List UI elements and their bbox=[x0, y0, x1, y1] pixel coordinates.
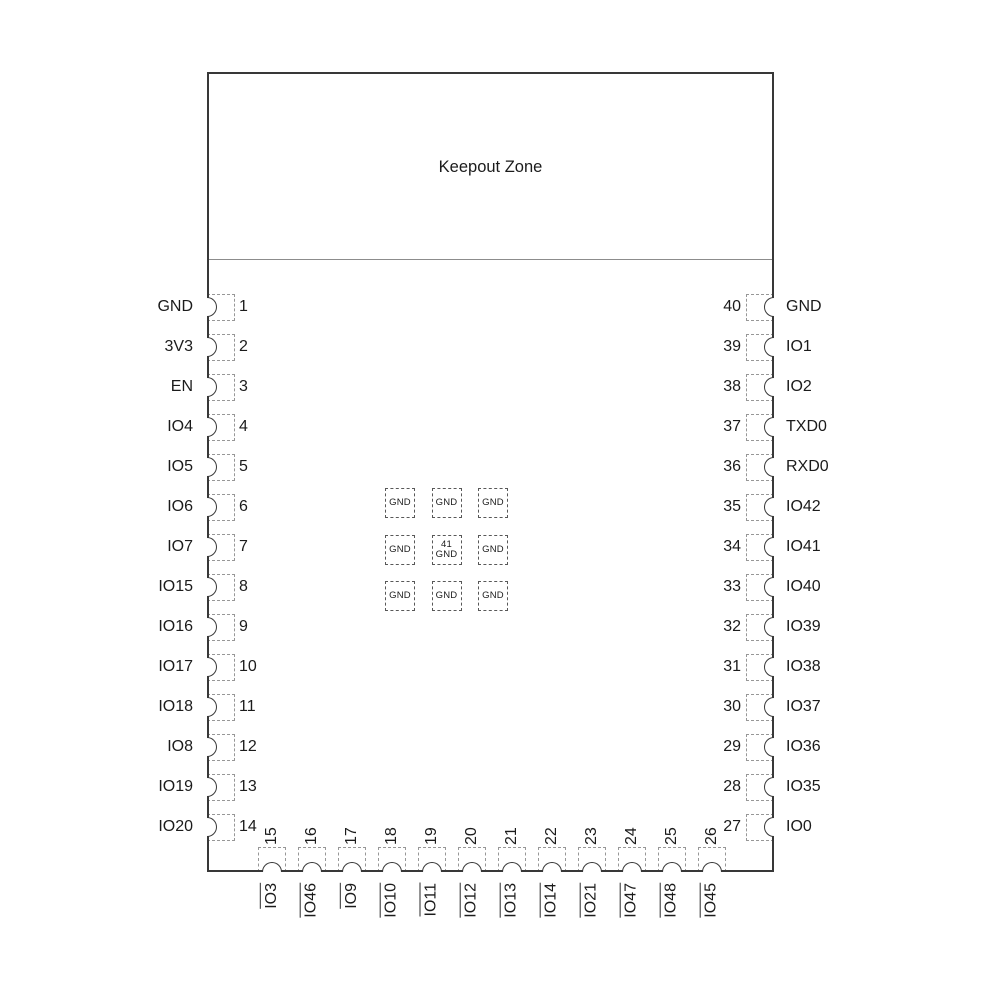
pin-24-number: 24 bbox=[623, 827, 640, 845]
pin-11-number: 11 bbox=[239, 698, 256, 715]
pin-24-label: IO47 bbox=[620, 883, 640, 918]
pin-25-number: 25 bbox=[663, 827, 680, 845]
pin-4-label: IO4 bbox=[167, 418, 193, 435]
pin-23-label: IO21 bbox=[580, 883, 600, 918]
pin-36-label: RXD0 bbox=[786, 458, 829, 475]
pin-27-number: 27 bbox=[723, 818, 741, 835]
gnd-pad-41-number: 41 bbox=[441, 540, 452, 550]
gnd-pad-3: GND bbox=[478, 488, 508, 518]
pin-29-label: IO36 bbox=[786, 738, 821, 755]
pin-3-number: 3 bbox=[239, 378, 248, 395]
pin-38-label: IO2 bbox=[786, 378, 812, 395]
gnd-pad-41-label: GND bbox=[436, 550, 458, 560]
gnd-pad-9-label: GND bbox=[482, 591, 504, 601]
pin-28-label: IO35 bbox=[786, 778, 821, 795]
pin-35-number: 35 bbox=[723, 498, 741, 515]
pin-14-label: IO20 bbox=[158, 818, 193, 835]
gnd-pad-6: GND bbox=[478, 535, 508, 565]
pin-27-label: IO0 bbox=[786, 818, 812, 835]
pin-8-number: 8 bbox=[239, 578, 248, 595]
gnd-pad-4-label: GND bbox=[389, 545, 411, 555]
pin-10-label: IO17 bbox=[158, 658, 193, 675]
pin-20-notch bbox=[462, 862, 482, 872]
pin-6-number: 6 bbox=[239, 498, 248, 515]
pin-9-label: IO16 bbox=[158, 618, 193, 635]
pin-33-label: IO40 bbox=[786, 578, 821, 595]
gnd-pad-1: GND bbox=[385, 488, 415, 518]
pin-32-number: 32 bbox=[723, 618, 741, 635]
pin-22-number: 22 bbox=[543, 827, 560, 845]
pin-25-notch bbox=[662, 862, 682, 872]
pin-18-number: 18 bbox=[383, 827, 400, 845]
pin-28-number: 28 bbox=[723, 778, 741, 795]
gnd-pad-2-label: GND bbox=[436, 498, 458, 508]
pin-10-number: 10 bbox=[239, 658, 257, 675]
pin-18-label: IO10 bbox=[380, 883, 400, 918]
gnd-pad-4: GND bbox=[385, 535, 415, 565]
keepout-zone-divider bbox=[209, 259, 772, 260]
pin-5-label: IO5 bbox=[167, 458, 193, 475]
pin-23-notch bbox=[582, 862, 602, 872]
gnd-pad-7-label: GND bbox=[389, 591, 411, 601]
pin-18-notch bbox=[382, 862, 402, 872]
pin-25-label: IO48 bbox=[660, 883, 680, 918]
pin-40-label: GND bbox=[786, 298, 822, 315]
pin-21-notch bbox=[502, 862, 522, 872]
pin-31-label: IO38 bbox=[786, 658, 821, 675]
pin-7-label: IO7 bbox=[167, 538, 193, 555]
pin-16-number: 16 bbox=[303, 827, 320, 845]
gnd-pad-2: GND bbox=[432, 488, 462, 518]
pin-22-notch bbox=[542, 862, 562, 872]
pin-38-number: 38 bbox=[723, 378, 741, 395]
pin-39-label: IO1 bbox=[786, 338, 812, 355]
pin-11-label: IO18 bbox=[158, 698, 193, 715]
pin-34-number: 34 bbox=[723, 538, 741, 555]
pin-21-number: 21 bbox=[503, 827, 520, 845]
pin-29-number: 29 bbox=[723, 738, 741, 755]
pin-4-number: 4 bbox=[239, 418, 248, 435]
pin-5-number: 5 bbox=[239, 458, 248, 475]
keepout-zone-label: Keepout Zone bbox=[209, 158, 772, 177]
pin-30-label: IO37 bbox=[786, 698, 821, 715]
gnd-pad-7: GND bbox=[385, 581, 415, 611]
pin-31-number: 31 bbox=[723, 658, 741, 675]
pin-36-number: 36 bbox=[723, 458, 741, 475]
module-outline bbox=[207, 72, 774, 872]
pin-15-notch bbox=[262, 862, 282, 872]
pin-6-label: IO6 bbox=[167, 498, 193, 515]
pin-23-number: 23 bbox=[583, 827, 600, 845]
pin-12-number: 12 bbox=[239, 738, 257, 755]
gnd-pad-41: 41GND bbox=[432, 535, 462, 565]
pin-34-label: IO41 bbox=[786, 538, 821, 555]
pin-2-number: 2 bbox=[239, 338, 248, 355]
pin-19-notch bbox=[422, 862, 442, 872]
gnd-pad-1-label: GND bbox=[389, 498, 411, 508]
pin-13-label: IO19 bbox=[158, 778, 193, 795]
pin-17-notch bbox=[342, 862, 362, 872]
pin-16-label: IO46 bbox=[300, 883, 320, 918]
pin-16-notch bbox=[302, 862, 322, 872]
pin-17-label: IO9 bbox=[340, 883, 360, 909]
pin-30-number: 30 bbox=[723, 698, 741, 715]
pin-26-notch bbox=[702, 862, 722, 872]
gnd-pad-9: GND bbox=[478, 581, 508, 611]
pin-15-label: IO3 bbox=[260, 883, 280, 909]
pin-7-number: 7 bbox=[239, 538, 248, 555]
pin-12-label: IO8 bbox=[167, 738, 193, 755]
pin-21-label: IO13 bbox=[500, 883, 520, 918]
pin-39-number: 39 bbox=[723, 338, 741, 355]
pin-40-number: 40 bbox=[723, 298, 741, 315]
pin-35-label: IO42 bbox=[786, 498, 821, 515]
pin-19-number: 19 bbox=[423, 827, 440, 845]
pin-9-number: 9 bbox=[239, 618, 248, 635]
pin-2-label: 3V3 bbox=[165, 338, 193, 355]
pin-14-number: 14 bbox=[239, 818, 257, 835]
pin-26-number: 26 bbox=[703, 827, 720, 845]
pin-19-label: IO11 bbox=[420, 883, 440, 917]
gnd-pad-3-label: GND bbox=[482, 498, 504, 508]
pin-33-number: 33 bbox=[723, 578, 741, 595]
pin-37-number: 37 bbox=[723, 418, 741, 435]
pin-3-label: EN bbox=[171, 378, 193, 395]
pin-17-number: 17 bbox=[343, 827, 360, 845]
pin-15-number: 15 bbox=[263, 827, 280, 845]
pin-8-label: IO15 bbox=[158, 578, 193, 595]
pin-26-label: IO45 bbox=[700, 883, 720, 918]
pin-32-label: IO39 bbox=[786, 618, 821, 635]
pin-20-number: 20 bbox=[463, 827, 480, 845]
gnd-pad-8-label: GND bbox=[436, 591, 458, 601]
pin-20-label: IO12 bbox=[460, 883, 480, 918]
pin-22-label: IO14 bbox=[540, 883, 560, 918]
pin-1-number: 1 bbox=[239, 298, 248, 315]
pin-1-label: GND bbox=[157, 298, 193, 315]
gnd-pad-8: GND bbox=[432, 581, 462, 611]
gnd-pad-6-label: GND bbox=[482, 545, 504, 555]
pin-37-label: TXD0 bbox=[786, 418, 827, 435]
pinout-diagram: Keepout Zone 1GND23V33EN4IO45IO56IO67IO7… bbox=[0, 0, 1000, 1000]
pin-13-number: 13 bbox=[239, 778, 257, 795]
pin-24-notch bbox=[622, 862, 642, 872]
